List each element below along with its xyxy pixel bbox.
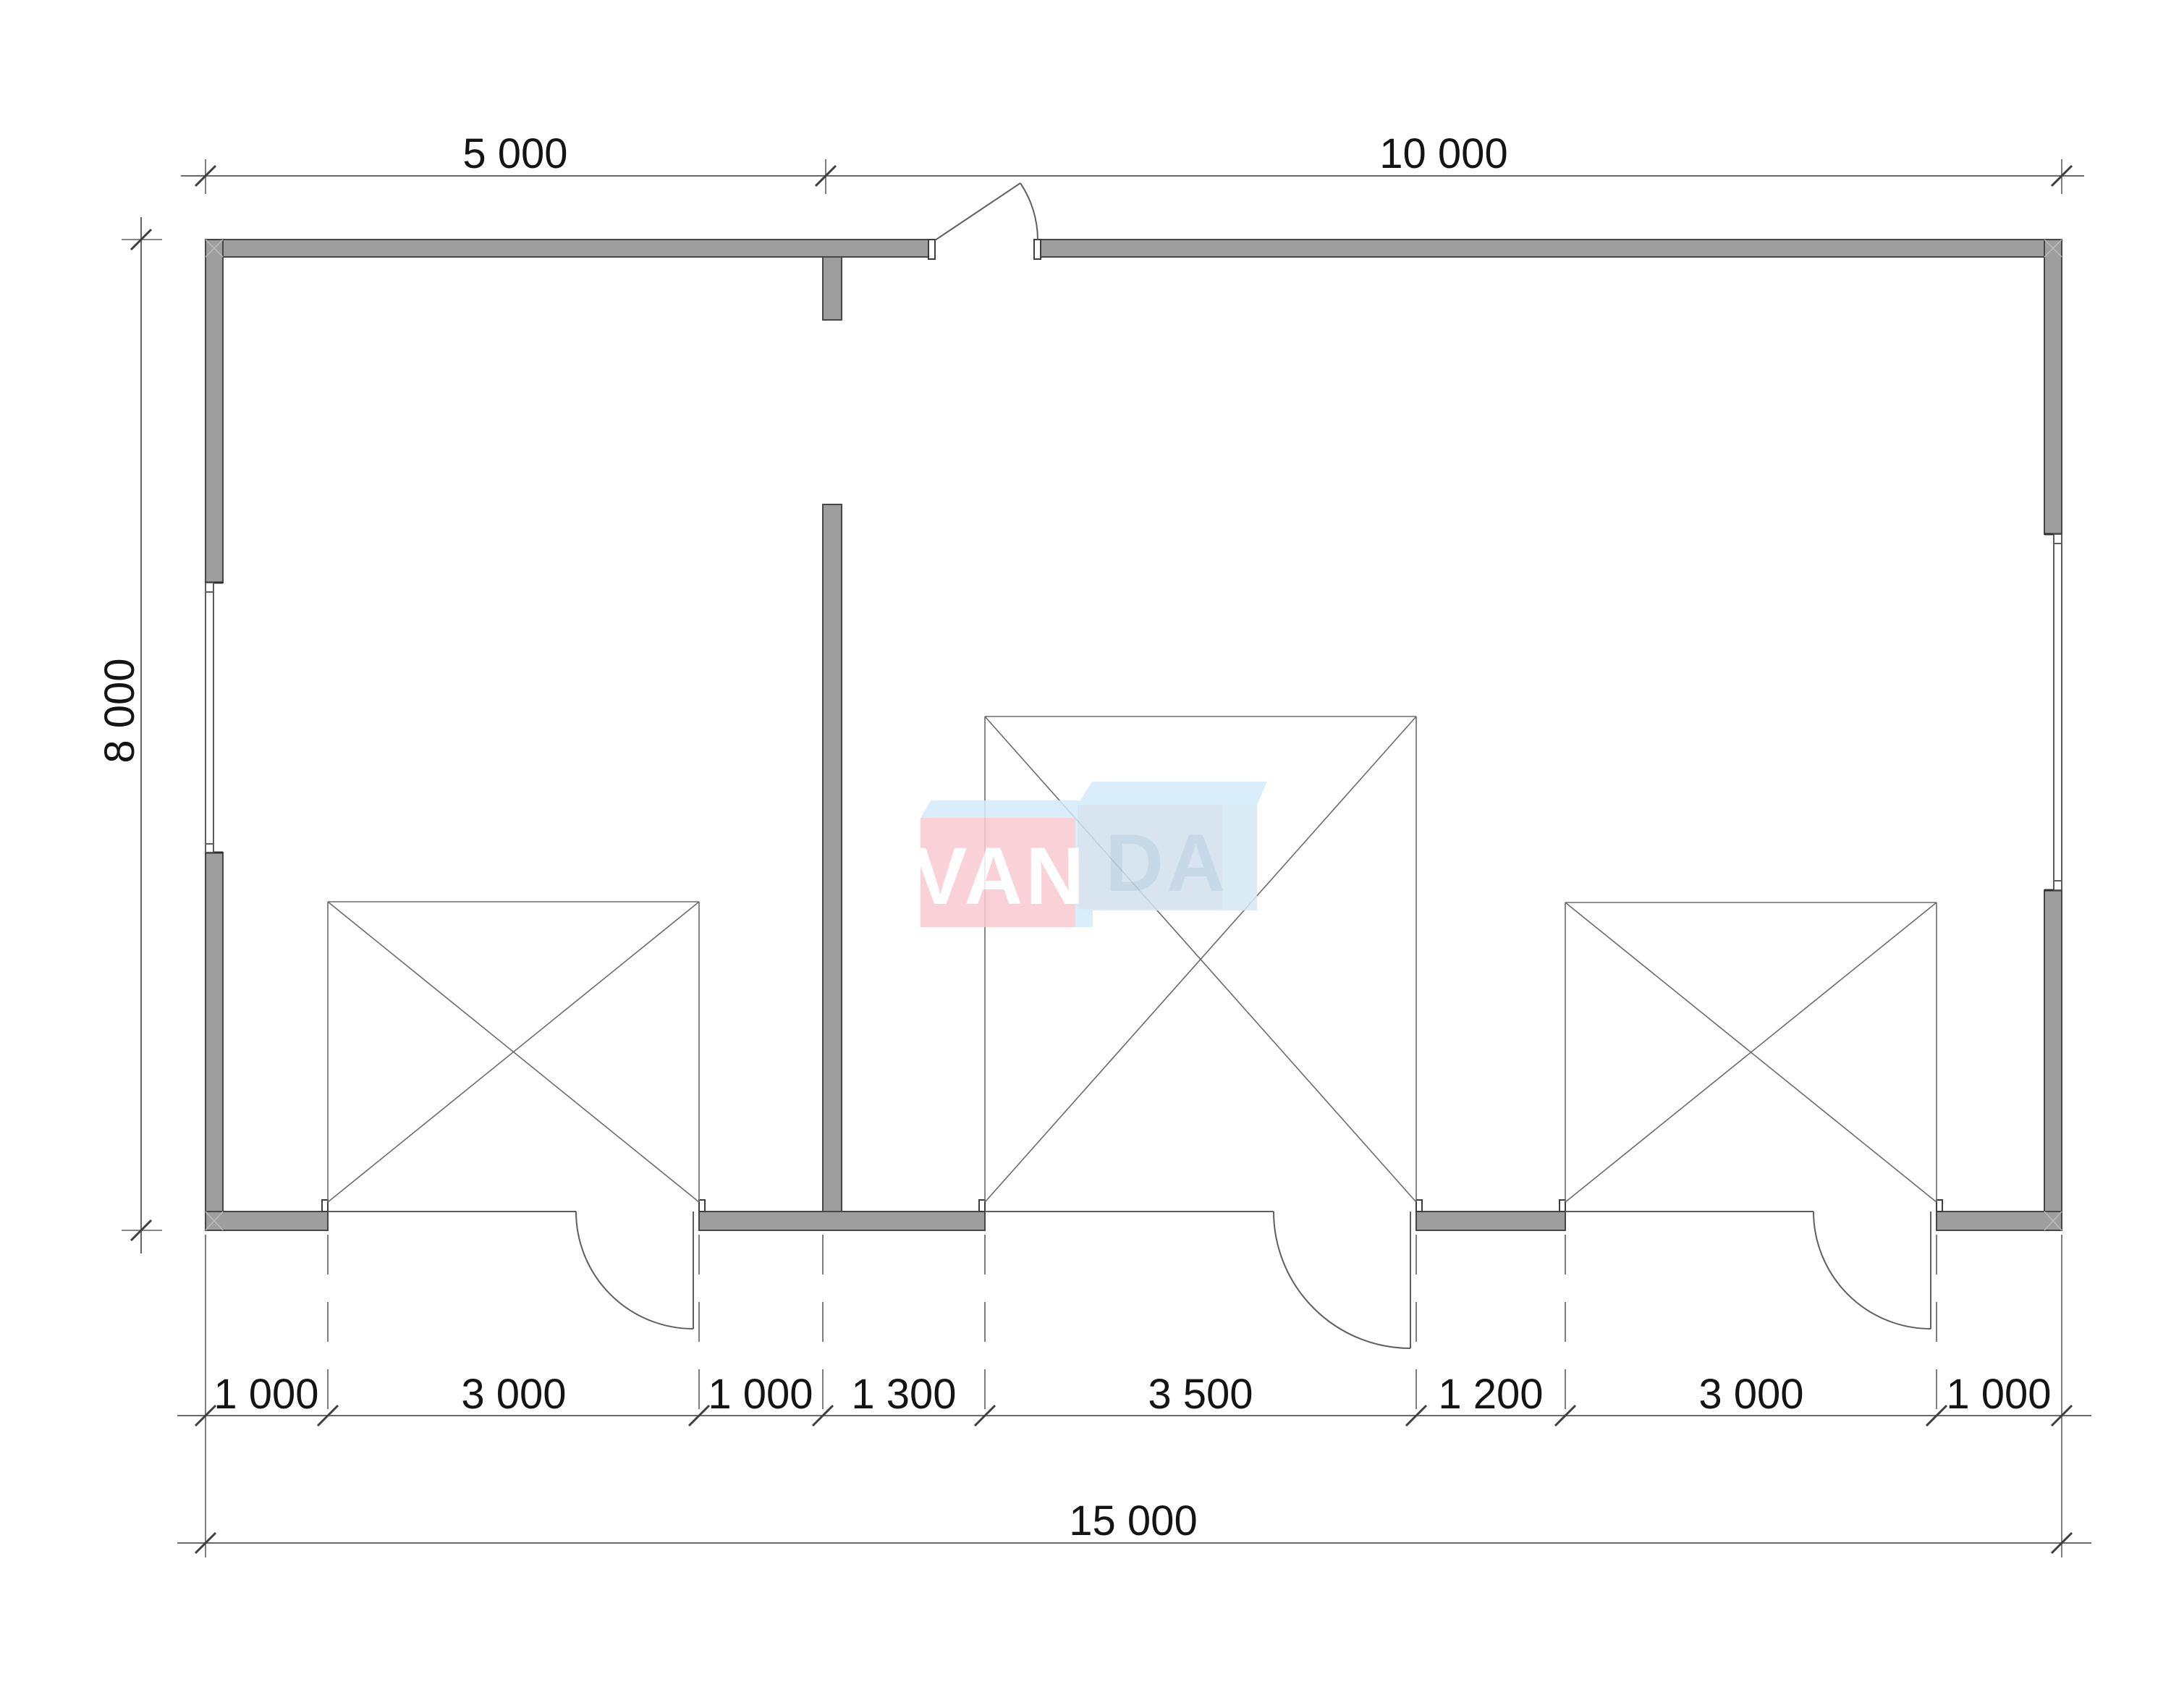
garage2-right-jamb (1416, 1200, 1422, 1212)
vanda-watermark-logo: VAN DA (913, 782, 1267, 927)
dimension-label-top-5000: 5 000 (462, 130, 567, 177)
garage1-swing-arc (576, 1212, 693, 1329)
right-window (2044, 534, 2062, 890)
garage2-left-jamb (979, 1200, 985, 1212)
garage-door-2 (979, 1200, 1422, 1348)
wall-corner-joints (206, 240, 2062, 1230)
overall-dimension-line: 15 000 (177, 1497, 2091, 1553)
garage3-swing-arc (1814, 1212, 1931, 1329)
entry-door-swing-arc (1020, 183, 1038, 240)
right-wall-upper-segment (2044, 240, 2062, 534)
dimension-label-top-10000: 10 000 (1379, 130, 1507, 177)
logo-blue-box-top-face (1078, 782, 1267, 805)
entry-door (928, 183, 1041, 259)
floor-plan-page: 5 000 10 000 8 000 1 000 3 00 (0, 0, 2171, 1708)
left-window-frame (206, 583, 213, 853)
left-wall-upper-segment (206, 240, 223, 583)
logo-text-van: VAN (913, 831, 1087, 921)
dimension-label-seg-3: 1 000 (708, 1371, 813, 1418)
interior-partition-wall (823, 257, 842, 1212)
dimension-label-seg-5: 3 500 (1148, 1371, 1253, 1418)
garage1-right-jamb (699, 1200, 705, 1212)
logo-text-da: DA (1105, 818, 1228, 908)
garage3-clearance-box (1565, 902, 1937, 1202)
dimension-label-left-8000: 8 000 (96, 658, 143, 763)
dimension-label-seg-4: 1 300 (851, 1371, 956, 1418)
partition-wall-lower-segment (823, 504, 842, 1212)
top-wall-right-segment (1041, 240, 2062, 257)
garage3-right-jamb (1937, 1200, 1942, 1212)
right-window-frame (2054, 534, 2062, 890)
bottom-wall-segment-1 (206, 1212, 328, 1230)
garage3-left-jamb (1560, 1200, 1565, 1212)
dimension-label-seg-7: 3 000 (1698, 1371, 1803, 1418)
dimension-label-seg-6: 1 200 (1438, 1371, 1543, 1418)
bottom-wall-segment-4 (1937, 1212, 2062, 1230)
bottom-wall-segment-3 (1416, 1212, 1565, 1230)
dimension-label-seg-8: 1 000 (1946, 1371, 2051, 1418)
entry-door-left-jamb (928, 240, 935, 259)
entry-door-right-jamb (1034, 240, 1041, 259)
garage2-swing-arc (1274, 1212, 1410, 1348)
dimension-label-seg-2: 3 000 (461, 1371, 566, 1418)
partition-wall-upper-stub (823, 257, 842, 320)
exterior-walls (206, 240, 2062, 1230)
floor-plan-drawing: 5 000 10 000 8 000 1 000 3 00 (0, 0, 2171, 1708)
entry-door-leaf (935, 183, 1020, 240)
dimension-label-seg-1: 1 000 (213, 1371, 318, 1418)
top-wall-left-segment (206, 240, 928, 257)
garage1-clearance-box (328, 902, 699, 1202)
bottom-wall-segment-2 (699, 1212, 985, 1230)
top-dimension-line: 5 000 10 000 (181, 130, 2084, 194)
left-wall-lower-segment (206, 853, 223, 1230)
dimension-label-overall-15000: 15 000 (1069, 1497, 1197, 1544)
logo-pink-box-top-face (921, 800, 1094, 818)
right-wall-lower-segment (2044, 890, 2062, 1230)
garage-door-1 (322, 1200, 705, 1329)
garage1-left-jamb (322, 1200, 328, 1212)
garage-door-3 (1560, 1200, 1942, 1329)
left-window (206, 583, 223, 853)
left-dimension-line: 8 000 (96, 217, 162, 1253)
